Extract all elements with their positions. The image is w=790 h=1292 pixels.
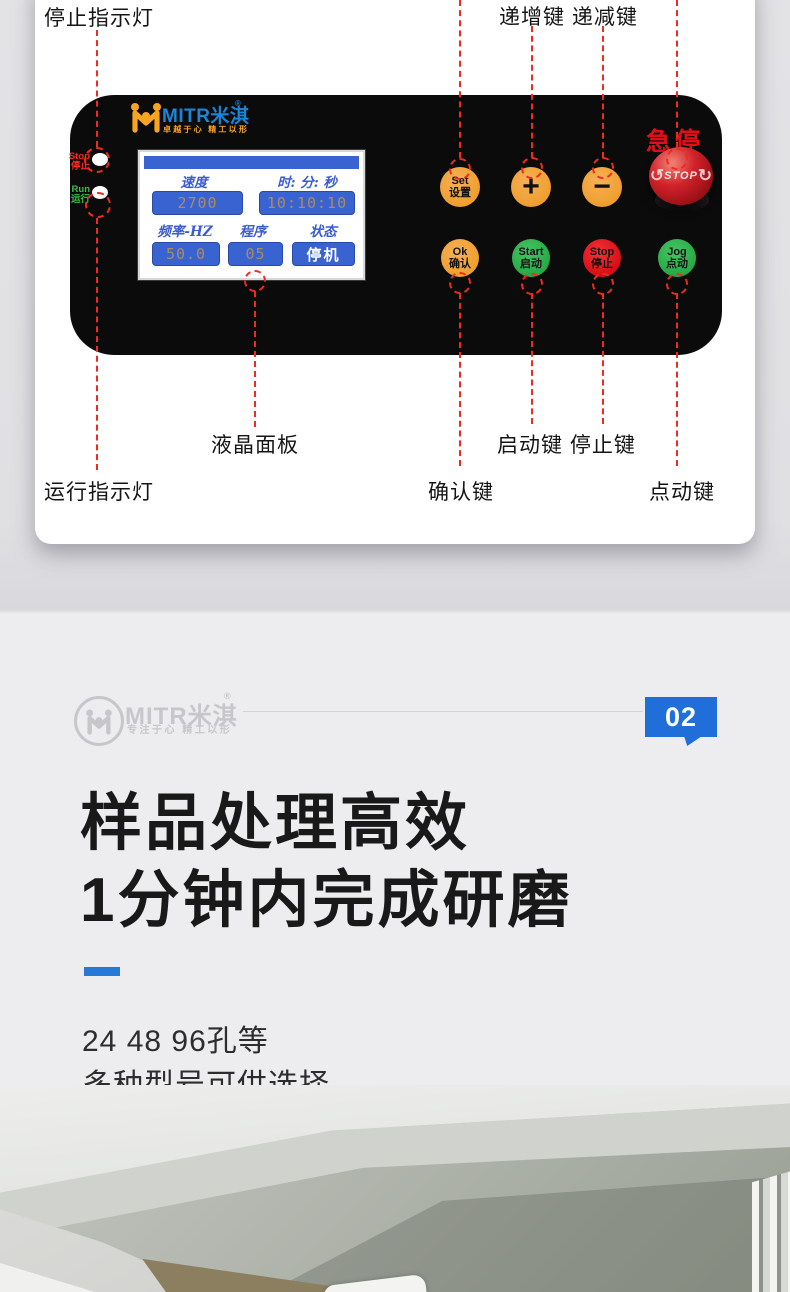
accent-dash	[84, 967, 120, 976]
annotation-line-stop-indicator	[96, 30, 98, 147]
product-detail-page: MITR米淇 ® 卓越于心 精工以形 Stop停止 Run运行 速度 时: 分:…	[0, 0, 790, 1292]
section-number-badge: 02	[645, 697, 717, 737]
annotation-line-lcd	[254, 291, 256, 427]
annotation-ring-estop	[666, 148, 688, 170]
annotation-line-decrease	[602, 26, 604, 158]
lcd-title-bar	[144, 156, 359, 169]
lcd-speed-value: 2700	[177, 194, 217, 212]
callout-jog: 点动键	[649, 476, 715, 506]
annotation-ring-set	[449, 158, 471, 180]
lcd-time-value: 10:10:10	[267, 194, 347, 212]
lcd-freq-field: 50.0	[152, 242, 220, 266]
rotate-left-icon: ↺	[650, 166, 664, 186]
lcd-freq-value: 50.0	[166, 245, 206, 263]
lcd-freq-label: 频率-HZ	[148, 220, 222, 240]
watermark-registered-mark: ®	[224, 691, 231, 701]
callout-confirm: 确认键	[428, 476, 494, 506]
photo-right-edge-stripes	[752, 1170, 790, 1292]
lcd-prog-value: 05	[245, 245, 265, 263]
annotation-line-set	[459, 0, 461, 158]
lcd-time-label: 时: 分: 秒	[258, 171, 356, 191]
section-sub-line1: 24 48 96孔等	[82, 1016, 269, 1060]
callout-lcd: 液晶面板	[211, 429, 299, 459]
annotation-ring-increase	[521, 157, 543, 179]
callout-stop-indicator: 停止指示灯	[44, 2, 154, 32]
annotation-line-confirm	[459, 293, 461, 466]
stop-button[interactable]: Stop 停止	[583, 239, 621, 277]
annotation-ring-stopkey	[592, 273, 614, 295]
annotation-ring-stop-led	[84, 147, 110, 173]
lcd-speed-field: 2700	[152, 191, 243, 215]
lcd-prog-label: 程序	[224, 220, 282, 240]
annotation-ring-decrease	[592, 157, 614, 179]
watermark-slogan: 专注于心 精工以形	[127, 721, 232, 736]
mitr-logo-icon	[131, 100, 161, 133]
annotation-line-run-indicator	[96, 218, 98, 470]
registered-mark: ®	[235, 99, 241, 108]
callout-run-indicator: 运行指示灯	[44, 476, 154, 506]
annotation-line-increase	[531, 26, 533, 158]
badge-tail	[684, 736, 702, 746]
annotation-ring-start	[521, 273, 543, 295]
lcd-status-label: 状态	[293, 220, 353, 240]
watermark-logo-circle	[74, 696, 124, 746]
annotation-line-estop	[676, 0, 678, 148]
lcd-status-field: 停机	[292, 242, 355, 266]
annotation-ring-lcd	[244, 270, 266, 292]
start-button[interactable]: Start 启动	[512, 239, 550, 277]
lcd-speed-label: 速度	[164, 171, 224, 191]
annotation-line-stopkey	[602, 293, 604, 424]
watermark-logo-icon	[86, 707, 112, 735]
lcd-time-field: 10:10:10	[259, 191, 355, 215]
callout-inc-dec: 递增键 递减键	[499, 1, 638, 31]
brand-slogan: 卓越于心 精工以形	[163, 124, 249, 135]
product-photo	[0, 1085, 790, 1292]
divider-line	[243, 711, 643, 712]
lcd-status-value: 停机	[306, 244, 340, 265]
section-heading-line2: 1分钟内完成研磨	[80, 849, 572, 939]
lcd-prog-field: 05	[228, 242, 283, 266]
annotation-ring-jog	[666, 273, 688, 295]
jog-button[interactable]: Jog 点动	[658, 239, 696, 277]
annotation-line-start	[531, 293, 533, 424]
rotate-right-icon: ↻	[698, 166, 712, 186]
callout-start-stop: 启动键 停止键	[497, 429, 636, 459]
annotation-line-jog	[676, 293, 678, 466]
annotation-ring-run-led	[85, 192, 111, 218]
annotation-ring-ok	[449, 272, 471, 294]
